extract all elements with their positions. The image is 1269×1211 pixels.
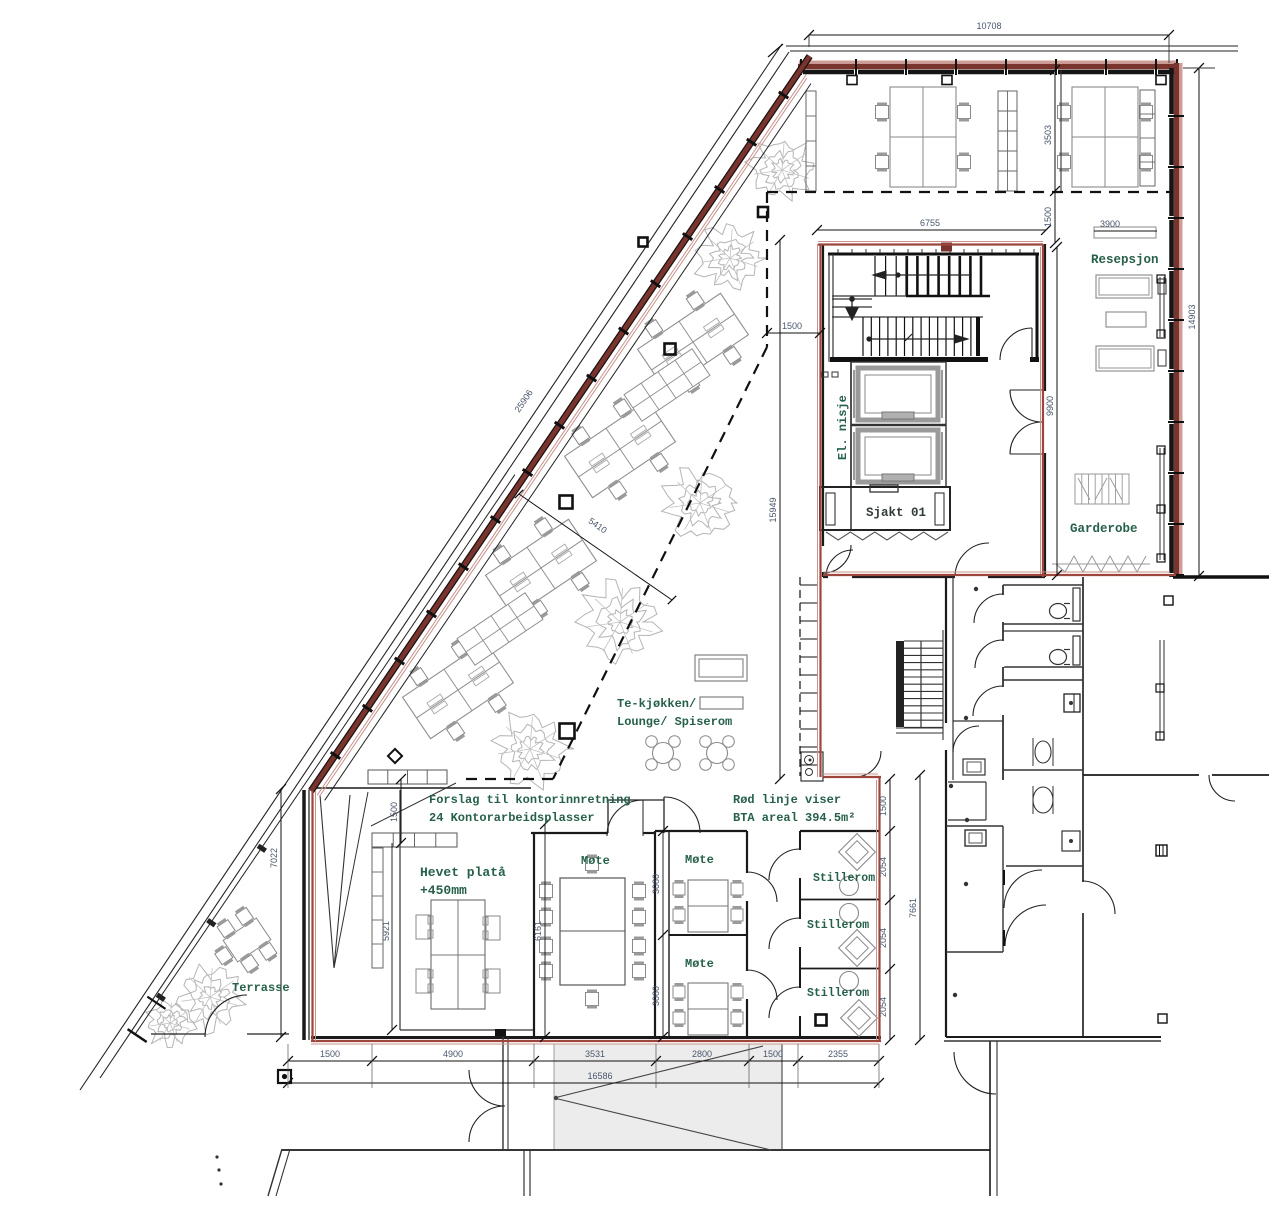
svg-text:Terrasse: Terrasse [232, 981, 290, 995]
svg-text:2800: 2800 [692, 1049, 712, 1059]
svg-text:Lounge/ Spiserom: Lounge/ Spiserom [617, 715, 732, 729]
svg-text:9900: 9900 [1045, 396, 1055, 416]
svg-text:Stillerom: Stillerom [807, 987, 869, 1000]
svg-text:BTA areal 394.5m²: BTA areal 394.5m² [733, 811, 855, 825]
svg-text:3080: 3080 [651, 874, 661, 894]
svg-text:El. nisje: El. nisje [836, 395, 850, 460]
svg-text:Resepsjon: Resepsjon [1091, 253, 1159, 267]
svg-text:14903: 14903 [1187, 304, 1197, 329]
svg-text:1500: 1500 [389, 802, 399, 822]
svg-text:1500: 1500 [878, 796, 888, 816]
svg-text:3531: 3531 [585, 1049, 605, 1059]
svg-text:6161: 6161 [533, 921, 543, 941]
svg-text:10708: 10708 [976, 21, 1001, 31]
svg-text:Hevet platå: Hevet platå [420, 865, 506, 880]
svg-text:+450mm: +450mm [420, 883, 467, 898]
svg-text:24 Kontorarbeidsplasser: 24 Kontorarbeidsplasser [429, 811, 595, 825]
svg-text:2054: 2054 [878, 857, 888, 877]
svg-text:3900: 3900 [1100, 219, 1120, 229]
svg-text:16586: 16586 [587, 1071, 612, 1081]
svg-text:Møte: Møte [685, 957, 714, 971]
svg-text:1500: 1500 [763, 1049, 783, 1059]
svg-text:Garderobe: Garderobe [1070, 522, 1138, 536]
svg-text:Møte: Møte [581, 854, 610, 868]
svg-text:4900: 4900 [443, 1049, 463, 1059]
svg-text:1500: 1500 [320, 1049, 340, 1059]
svg-text:1500: 1500 [782, 321, 802, 331]
svg-text:2054: 2054 [878, 928, 888, 948]
svg-text:2355: 2355 [828, 1049, 848, 1059]
svg-text:2054: 2054 [878, 997, 888, 1017]
svg-text:6755: 6755 [920, 218, 940, 228]
svg-text:3080: 3080 [651, 986, 661, 1006]
svg-text:Forslag til kontorinnretning: Forslag til kontorinnretning [429, 793, 631, 807]
svg-text:Stillerom: Stillerom [813, 872, 875, 885]
svg-text:5921: 5921 [381, 921, 391, 941]
svg-text:7661: 7661 [908, 898, 918, 918]
svg-text:1500: 1500 [1043, 207, 1053, 227]
svg-text:3503: 3503 [1043, 125, 1053, 145]
svg-text:7022: 7022 [269, 848, 279, 868]
svg-text:Te-kjøkken/: Te-kjøkken/ [617, 697, 696, 711]
svg-text:Stillerom: Stillerom [807, 919, 869, 932]
svg-text:Rød linje viser: Rød linje viser [733, 793, 841, 807]
svg-text:15949: 15949 [768, 497, 778, 522]
svg-text:Sjakt 01: Sjakt 01 [866, 506, 926, 520]
svg-text:Møte: Møte [685, 853, 714, 867]
